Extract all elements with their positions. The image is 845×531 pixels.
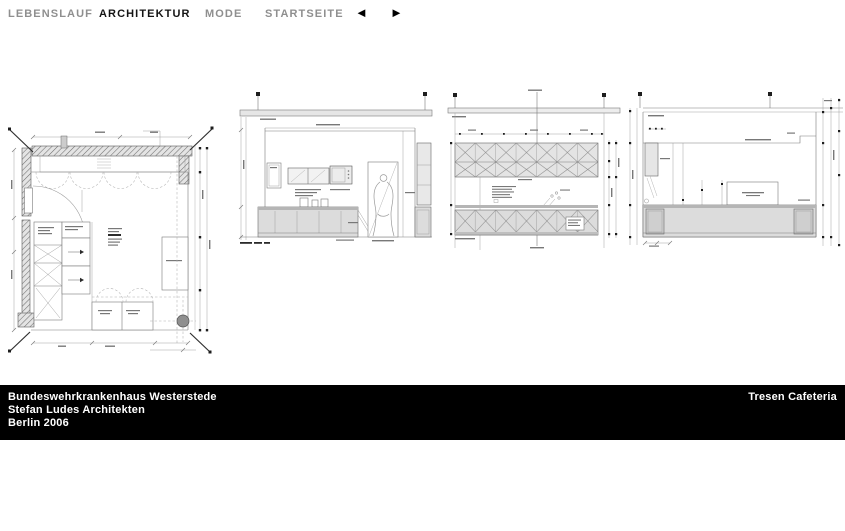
column-symbol <box>177 315 189 327</box>
architect-name: Stefan Ludes Architekten <box>8 404 217 417</box>
project-caption-bar: Bundeswehrkrankenhaus Westerstede Stefan… <box>0 385 845 440</box>
elevation-3-drawing <box>629 92 843 247</box>
room-label <box>108 228 122 246</box>
elevation-2-drawing <box>448 90 620 251</box>
elevation-caption <box>240 242 270 244</box>
elevation-1-drawing <box>239 92 432 244</box>
portfolio-page: LEBENSLAUF ARCHITEKTUR MODE STARTSEITE ◄… <box>0 0 845 531</box>
project-title: Bundeswehrkrankenhaus Westerstede <box>8 391 217 404</box>
floor-plan-drawing <box>8 127 214 354</box>
project-year: Berlin 2006 <box>8 417 217 430</box>
architectural-drawings <box>0 0 845 385</box>
project-info: Bundeswehrkrankenhaus Westerstede Stefan… <box>8 391 217 430</box>
drawing-caption: Tresen Cafeteria <box>748 391 837 403</box>
annotation-block <box>492 186 516 203</box>
